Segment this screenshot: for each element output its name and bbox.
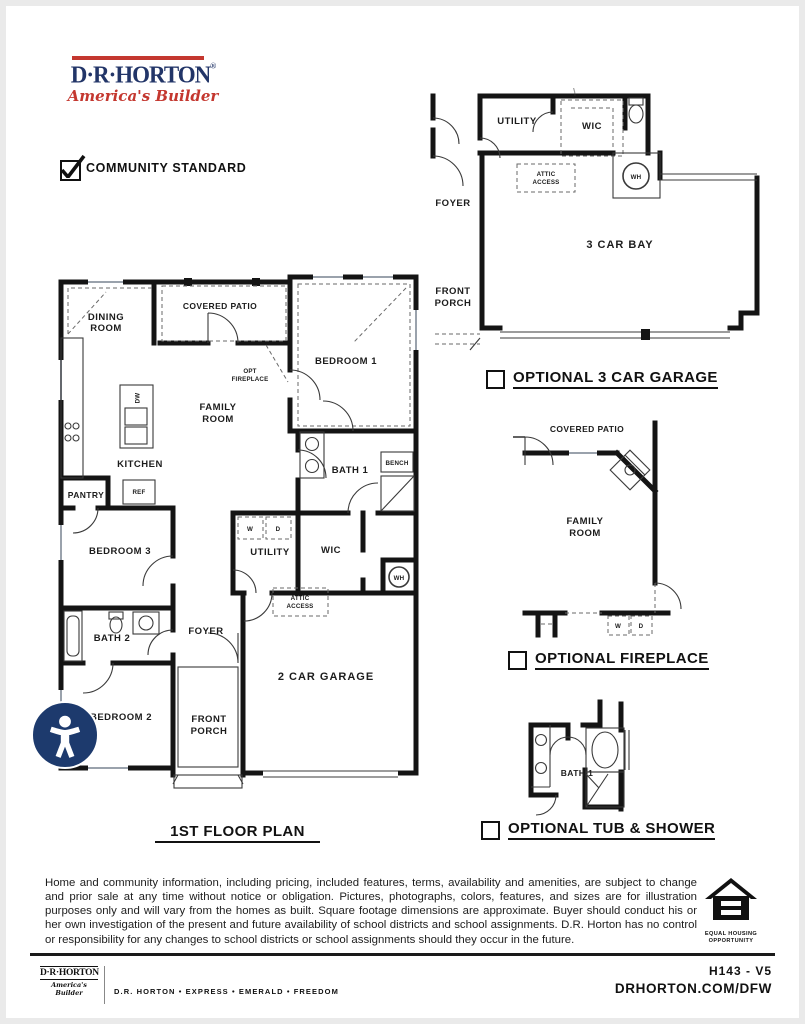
first-floor-plan-title: 1ST FLOOR PLAN: [155, 823, 320, 843]
room-label-bath1: BATH 1: [561, 768, 593, 778]
accessibility-icon: [31, 701, 99, 769]
svg-text:FIREPLACE: FIREPLACE: [232, 376, 269, 383]
room-label-wic: WIC: [582, 121, 602, 132]
plan-code: H143 - V5: [615, 964, 772, 978]
registered-mark: ®: [210, 61, 215, 70]
sink-icon: [536, 763, 547, 774]
optional-garage-label: OPTIONAL 3 CAR GARAGE: [513, 369, 718, 389]
walls: [531, 702, 629, 809]
room-labels: UTILITY WIC ATTIC ACCESS FOYER FRONT POR…: [435, 116, 654, 309]
checkmark-icon: [56, 146, 88, 178]
brand-name: D·R·HORTON: [71, 61, 211, 87]
room-label-family: FAMILY: [200, 402, 237, 413]
washer-label: W: [615, 623, 621, 630]
brand-tagline: America's Builder: [63, 87, 223, 105]
attic-access-label: ATTIC: [291, 595, 310, 602]
room-label-pantry: PANTRY: [68, 490, 104, 500]
room-label-bedroom1: BEDROOM 1: [315, 356, 377, 367]
bench-label: BENCH: [385, 460, 408, 467]
sink-icon: [306, 438, 319, 451]
optional-tub-shower-plan: BATH 1: [478, 692, 703, 817]
optional-tub-caption: OPTIONAL TUB & SHOWER: [481, 820, 715, 840]
dryer-label: D: [276, 526, 281, 533]
dishwasher-label: DW: [135, 393, 142, 404]
fireplace-icon: [610, 450, 650, 490]
room-label-bath2: BATH 2: [94, 633, 131, 644]
opt-fireplace-label: OPT: [243, 368, 256, 375]
room-label-bedroom3: BEDROOM 3: [89, 546, 151, 557]
eho-label-line2: OPPORTUNITY: [702, 938, 760, 945]
brand-wordmark: D·R·HORTON®: [63, 61, 223, 88]
room-label-foyer: FOYER: [435, 198, 470, 209]
optional-tub-label: OPTIONAL TUB & SHOWER: [508, 820, 715, 840]
room-label-utility: UTILITY: [497, 116, 537, 127]
room-label-bath1: BATH 1: [332, 465, 369, 476]
washer-label: W: [247, 526, 253, 533]
optional-garage-checkbox[interactable]: [486, 370, 505, 389]
optional-tub-checkbox[interactable]: [481, 821, 500, 840]
svg-text:ROOM: ROOM: [90, 323, 122, 334]
footer-divider: [104, 966, 105, 1004]
vanity-icon: [300, 432, 324, 478]
svg-text:PORCH: PORCH: [435, 298, 472, 309]
optional-3-car-garage-plan: WH UTILITY WIC ATTIC ACCESS FOYER FRONT …: [425, 88, 765, 360]
room-label-dining: DINING: [88, 312, 124, 323]
eho-label-line1: EQUAL HOUSING: [702, 931, 760, 938]
room-label-bedroom2: BEDROOM 2: [90, 712, 152, 723]
footer-series-text: D.R. HORTON • EXPRESS • EMERALD • FREEDO…: [114, 987, 339, 996]
sink-icon: [306, 460, 319, 473]
fixtures: W D: [608, 616, 652, 635]
disclaimer-text: Home and community information, includin…: [45, 876, 697, 947]
svg-text:WH: WH: [394, 575, 405, 582]
optional-garage-caption: OPTIONAL 3 CAR GARAGE: [486, 369, 718, 389]
toilet-icon: [629, 105, 643, 123]
attic-access-label: ATTIC: [537, 171, 556, 178]
svg-text:ROOM: ROOM: [202, 414, 234, 425]
room-label-garage: 2 CAR GARAGE: [278, 671, 374, 683]
optional-fireplace-checkbox[interactable]: [508, 651, 527, 670]
attic-access-box: [517, 164, 575, 192]
room-label-covered-patio: COVERED PATIO: [183, 301, 257, 311]
website-text: DRHORTON.COM/DFW: [615, 981, 772, 996]
footer-brand-logo: D·R·HORTON America's Builder: [40, 966, 98, 997]
doors: [525, 437, 681, 624]
brand-red-bar: [72, 56, 204, 60]
room-labels: DINING ROOM COVERED PATIO BEDROOM 1 OPT …: [68, 301, 377, 737]
room-label-foyer: FOYER: [188, 626, 223, 637]
footer-rule: [30, 953, 775, 956]
svg-text:ACCESS: ACCESS: [287, 603, 314, 610]
community-standard-label: COMMUNITY STANDARD: [86, 161, 246, 175]
footer-brand-tagline: America's Builder: [40, 981, 98, 997]
equal-housing-icon: [705, 878, 757, 926]
svg-text:ACCESS: ACCESS: [533, 179, 560, 186]
dryer-label: D: [639, 623, 644, 630]
room-label-covered-patio: COVERED PATIO: [550, 424, 624, 434]
sink-icon: [139, 616, 153, 630]
optional-fireplace-label: OPTIONAL FIREPLACE: [535, 650, 709, 670]
svg-text:ROOM: ROOM: [569, 528, 601, 539]
room-labels: COVERED PATIO FAMILY ROOM: [550, 424, 624, 539]
room-label-utility: UTILITY: [250, 547, 290, 558]
svg-text:WH: WH: [631, 174, 642, 181]
equal-housing-logo: EQUAL HOUSING OPPORTUNITY: [702, 878, 760, 945]
room-label-3-car-bay: 3 CAR BAY: [586, 239, 653, 251]
floorplan-sheet: D·R·HORTON® America's Builder COMMUNITY …: [0, 0, 805, 1024]
footer-brand-wordmark: D·R·HORTON: [40, 966, 98, 980]
room-label-kitchen: KITCHEN: [117, 459, 163, 470]
room-label-front-porch: FRONT: [191, 714, 226, 725]
optional-fireplace-caption: OPTIONAL FIREPLACE: [508, 650, 709, 670]
sink-icon: [536, 735, 547, 746]
optional-fireplace-plan: W D COVERED PATIO FAMILY ROOM: [505, 413, 700, 643]
svg-text:PORCH: PORCH: [191, 726, 228, 737]
ref-label: REF: [133, 489, 146, 496]
room-label-family: FAMILY: [567, 516, 604, 527]
room-label-wic: WIC: [321, 545, 341, 556]
room-label-front-porch: FRONT: [435, 286, 470, 297]
